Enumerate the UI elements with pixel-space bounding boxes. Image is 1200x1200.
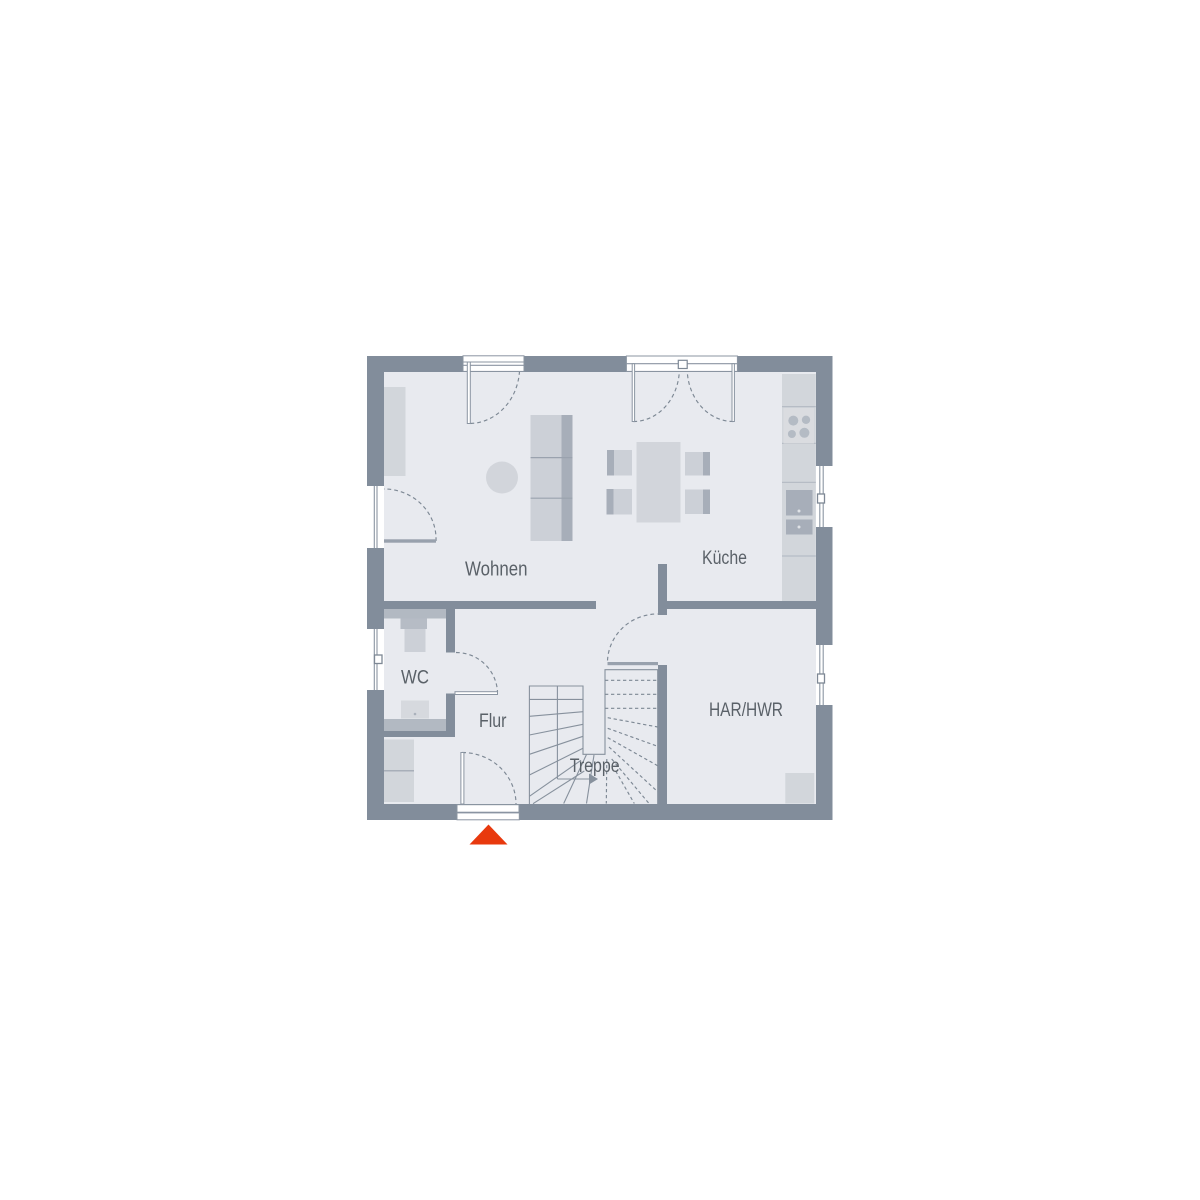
svg-text:Küche: Küche bbox=[702, 548, 747, 569]
svg-text:Treppe: Treppe bbox=[570, 756, 620, 777]
svg-text:Flur: Flur bbox=[479, 711, 507, 732]
svg-text:WC: WC bbox=[401, 668, 429, 689]
svg-text:Wohnen: Wohnen bbox=[465, 559, 528, 581]
svg-text:HAR/HWR: HAR/HWR bbox=[709, 700, 783, 721]
